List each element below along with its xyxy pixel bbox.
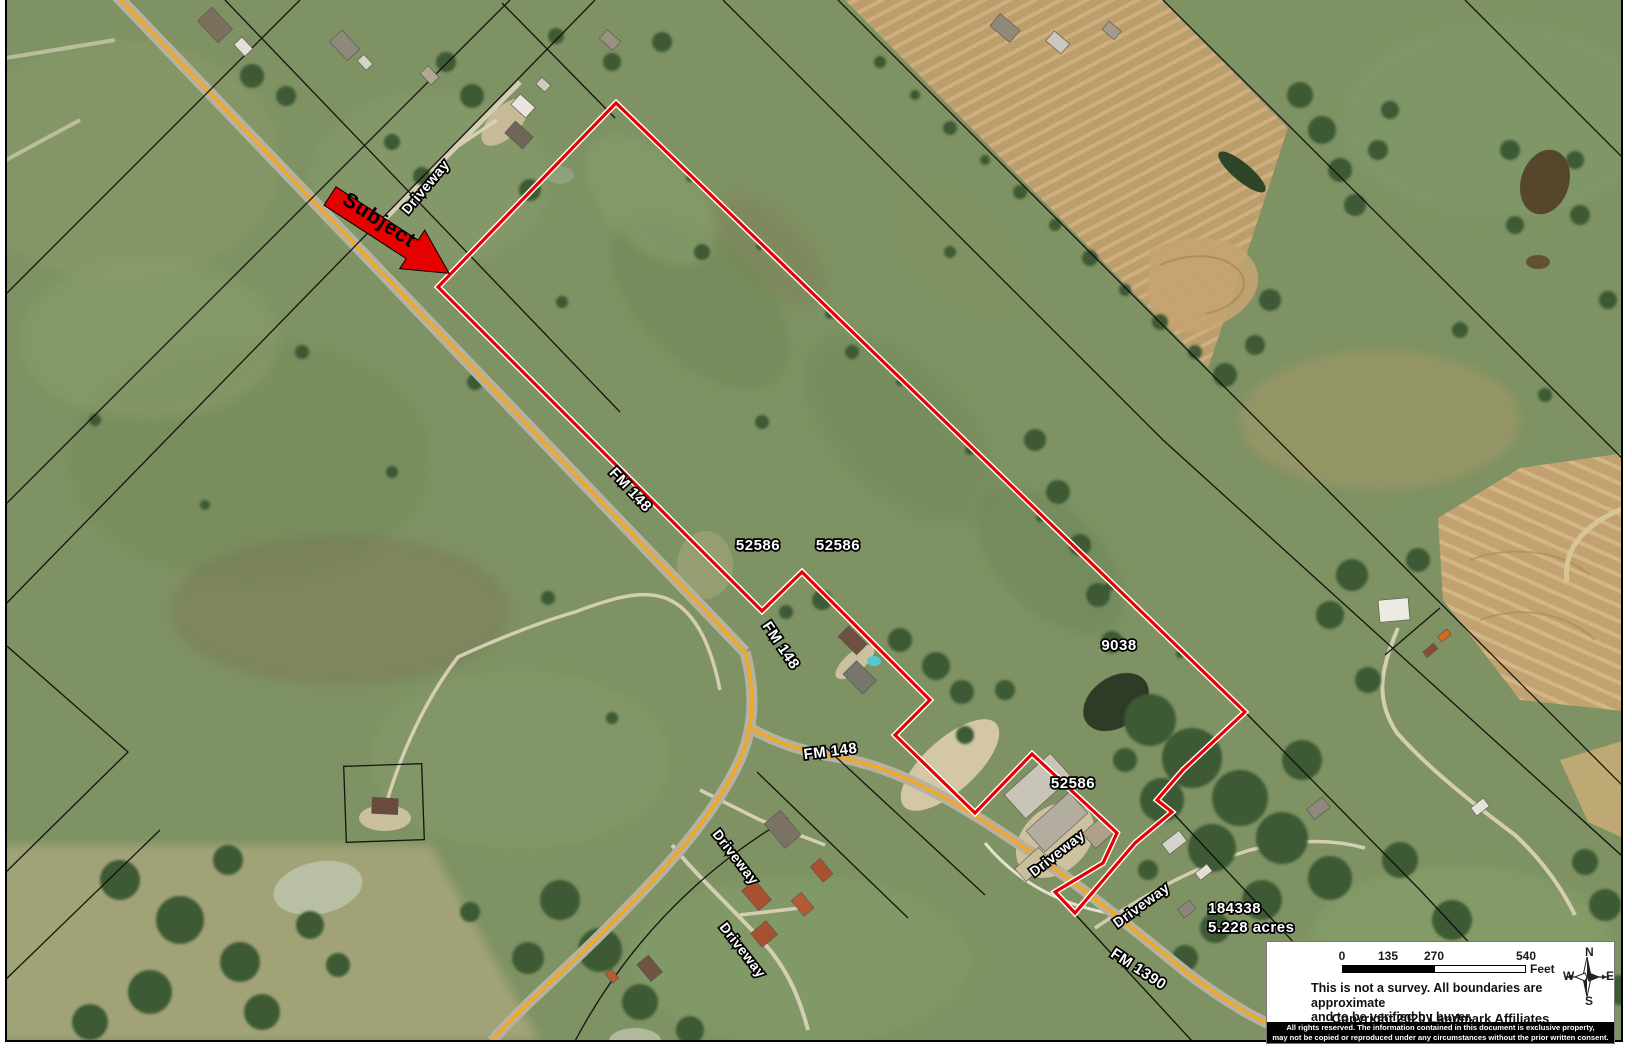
label-parcel-acreage: 5.228 acres (1208, 919, 1294, 936)
aerial-map: Subject Driveway FM 148 52586 52586 FM 1… (0, 0, 1632, 1056)
compass-north-label: N (1585, 945, 1594, 959)
map-canvas: Subject Driveway FM 148 52586 52586 FM 1… (0, 0, 1632, 1054)
rights-line2: may not be copied or reproduced under an… (1272, 1033, 1608, 1042)
label-parcel-184338: 184338 (1208, 900, 1261, 917)
scale-tick-270: 270 (1424, 949, 1444, 963)
rights-reserved-bar: All rights reserved. The information con… (1267, 1022, 1614, 1043)
scale-tick-0: 0 (1339, 949, 1346, 963)
rights-line1: All rights reserved. The information con… (1286, 1023, 1594, 1032)
label-parcel-9038: 9038 (1101, 637, 1136, 654)
label-parcel-52586-c: 52586 (1051, 775, 1095, 792)
disclaimer-line1: This is not a survey. All boundaries are… (1311, 981, 1542, 1010)
label-parcel-52586-a: 52586 (736, 537, 780, 554)
legend-box: 0 135 270 540 Feet N S W E This is not a… (1266, 941, 1615, 1044)
scale-tick-135: 135 (1378, 949, 1398, 963)
label-parcel-52586-b: 52586 (816, 537, 860, 554)
scale-unit-label: Feet (1530, 962, 1555, 976)
scale-bar-empty (1434, 965, 1526, 973)
scale-bar-filled (1342, 965, 1434, 973)
scale-tick-540: 540 (1516, 949, 1536, 963)
